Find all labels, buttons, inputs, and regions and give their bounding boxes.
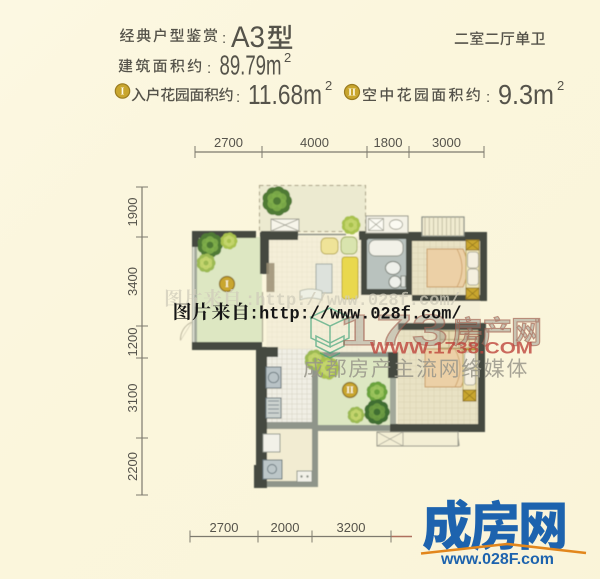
svg-text::: : xyxy=(486,89,490,106)
svg-text:2: 2 xyxy=(557,78,564,93)
svg-text:3200: 3200 xyxy=(337,520,366,535)
svg-text:2: 2 xyxy=(284,50,291,65)
svg-text:2700: 2700 xyxy=(214,135,243,150)
svg-text:I: I xyxy=(121,87,125,98)
svg-text:1200: 1200 xyxy=(125,328,140,357)
svg-text:www.028F.com: www.028F.com xyxy=(440,551,554,568)
svg-text:3100: 3100 xyxy=(125,384,140,413)
svg-text::: : xyxy=(236,89,240,106)
svg-text:2: 2 xyxy=(325,78,332,93)
svg-text:4000: 4000 xyxy=(300,135,329,150)
svg-text::: : xyxy=(222,30,226,47)
svg-text:II: II xyxy=(348,88,356,99)
svg-text:WWW.1738.COM: WWW.1738.COM xyxy=(370,340,533,358)
svg-text:2700: 2700 xyxy=(210,520,239,535)
svg-text:11.68m: 11.68m xyxy=(248,79,322,110)
svg-text::http://www.028f.com/: :http://www.028f.com/ xyxy=(249,305,462,325)
svg-text:1900: 1900 xyxy=(125,198,140,227)
svg-text::: : xyxy=(207,60,211,77)
svg-text:2200: 2200 xyxy=(125,452,140,481)
svg-text:9.3m: 9.3m xyxy=(498,79,554,110)
svg-text:II: II xyxy=(346,386,354,396)
svg-text:2000: 2000 xyxy=(271,520,300,535)
svg-text:89.79m: 89.79m xyxy=(220,50,282,81)
svg-text:3000: 3000 xyxy=(432,135,461,150)
svg-text:3400: 3400 xyxy=(125,267,140,296)
svg-text:1800: 1800 xyxy=(374,135,403,150)
svg-text:I: I xyxy=(225,280,229,290)
